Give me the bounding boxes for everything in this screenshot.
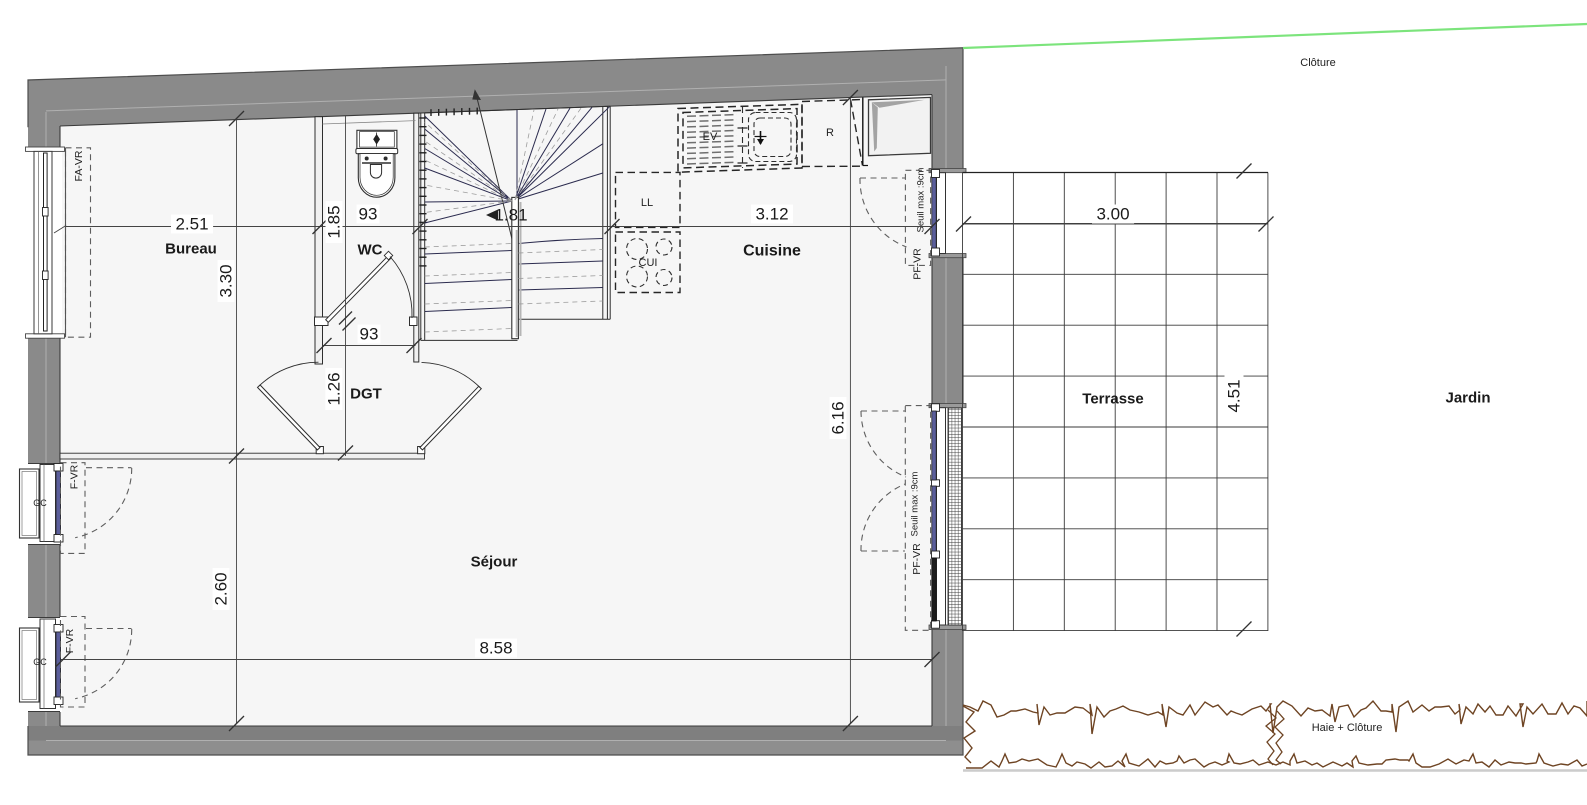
svg-text:4.51: 4.51 [1225,379,1244,412]
svg-text:EV: EV [703,131,718,143]
svg-text:FA-VR: FA-VR [73,150,85,181]
svg-text:Seuil max :9cm: Seuil max :9cm [910,471,921,536]
svg-text:WC: WC [358,242,383,259]
svg-text:DGT: DGT [350,386,382,403]
svg-text:F-VR: F-VR [64,628,76,653]
svg-text:Haie + Clôture: Haie + Clôture [1312,722,1383,734]
svg-text:Bureau: Bureau [165,241,217,258]
svg-text:GC: GC [33,498,47,508]
svg-text:6.16: 6.16 [829,401,848,434]
svg-text:2.51: 2.51 [175,215,208,234]
svg-text:CUI: CUI [639,257,658,269]
svg-text:F-VR: F-VR [68,464,80,489]
svg-text:PF-VR: PF-VR [911,248,923,280]
svg-text:Séjour: Séjour [471,554,518,571]
svg-text:Cuisine: Cuisine [743,243,801,260]
svg-text:PF-VR: PF-VR [911,543,923,575]
svg-text:Seuil max :9cm: Seuil max :9cm [916,167,927,232]
svg-text:LL: LL [641,197,653,209]
svg-text:1.85: 1.85 [325,205,344,238]
svg-text:93: 93 [359,205,378,224]
svg-text:93: 93 [360,325,379,344]
svg-text:3.00: 3.00 [1096,205,1129,224]
svg-text:3.30: 3.30 [217,264,236,297]
svg-text:2.60: 2.60 [212,572,231,605]
svg-text:1.26: 1.26 [324,372,343,405]
svg-text:Clôture: Clôture [1300,57,1335,69]
svg-text:Terrasse: Terrasse [1082,391,1143,408]
svg-text:8.58: 8.58 [479,639,512,658]
svg-text:3.12: 3.12 [755,205,788,224]
svg-text:Jardin: Jardin [1445,390,1490,407]
svg-text:GC: GC [33,657,47,667]
svg-text:1.81: 1.81 [494,206,527,225]
svg-text:R: R [826,127,834,139]
